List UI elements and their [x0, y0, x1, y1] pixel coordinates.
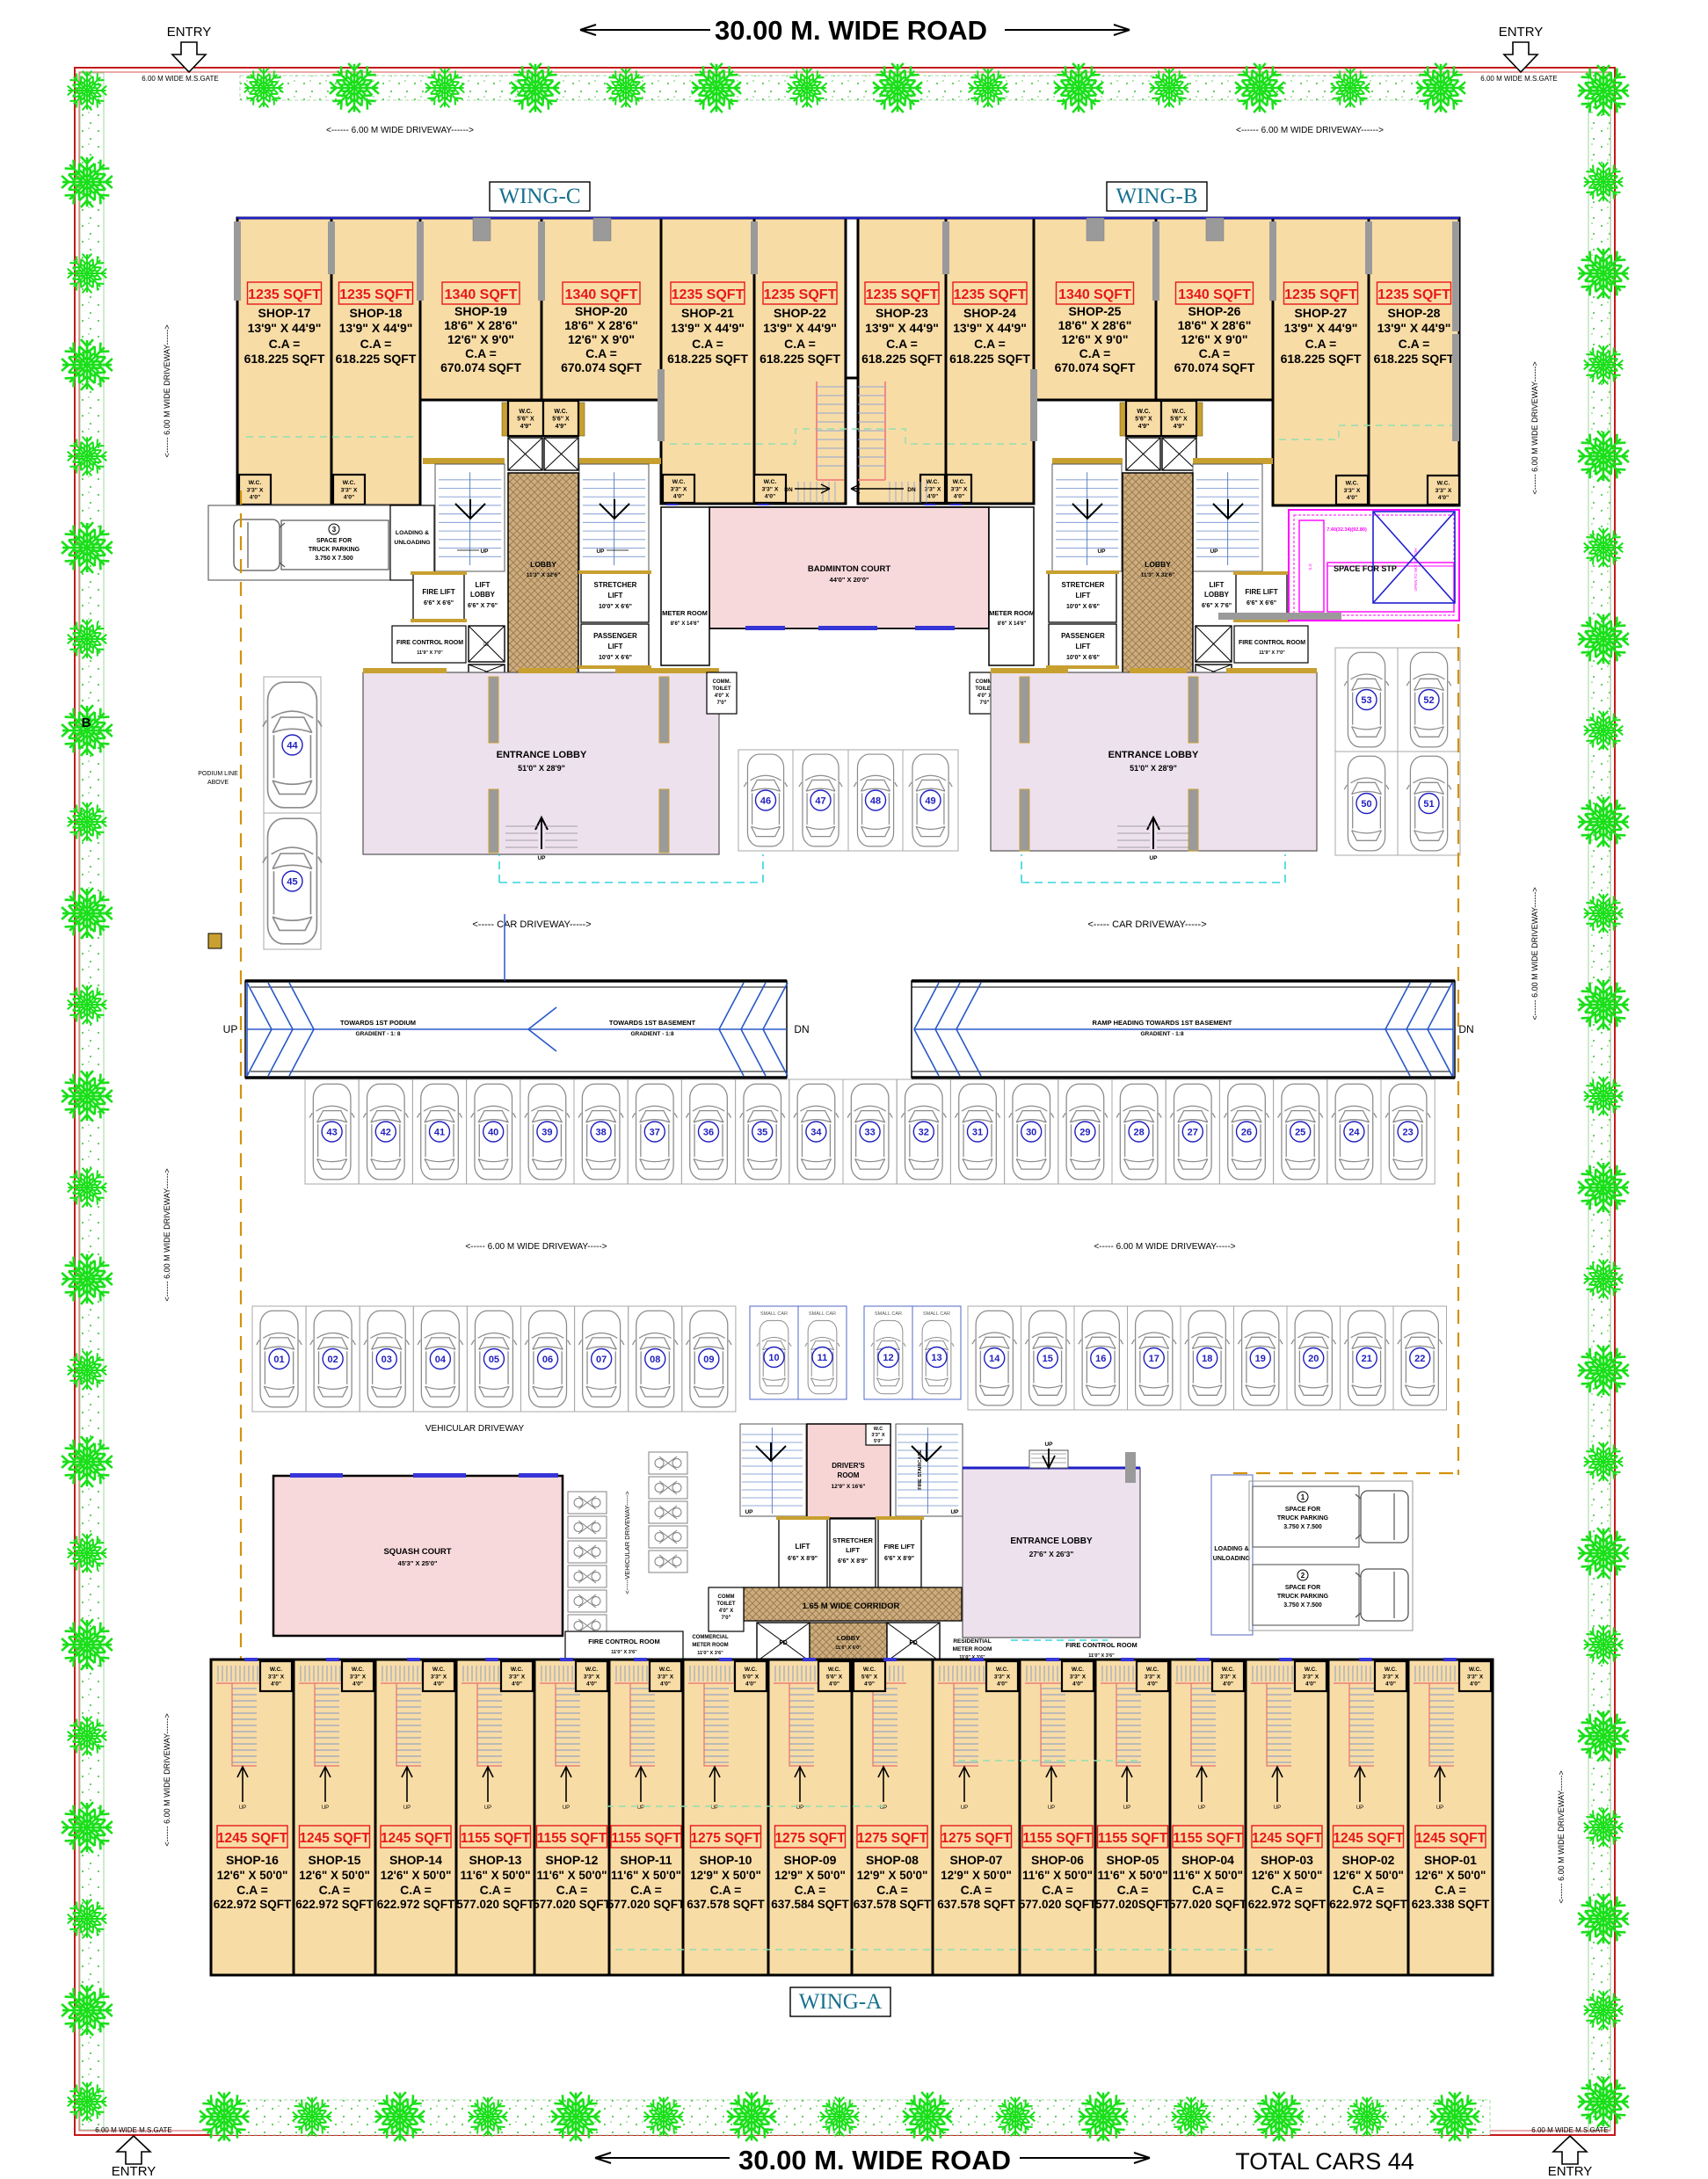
svg-text:45'3" X 25'0": 45'3" X 25'0" [398, 1559, 438, 1567]
svg-text:GRADIENT - 1:8: GRADIENT - 1:8 [1140, 1031, 1184, 1037]
svg-text:3'3" X: 3'3" X [1435, 488, 1452, 494]
svg-text:UP: UP [637, 1805, 644, 1811]
svg-text:622.972 SQFT: 622.972 SQFT [1248, 1898, 1326, 1911]
svg-text:DN: DN [794, 1023, 809, 1035]
svg-text:C.A =: C.A = [556, 1883, 588, 1897]
svg-text:C.A =: C.A = [795, 1883, 826, 1897]
svg-text:11: 11 [818, 1353, 828, 1363]
svg-text:UP: UP [1097, 548, 1106, 555]
svg-text:3.750 X 7.500: 3.750 X 7.500 [1283, 1524, 1322, 1530]
svg-text:SMALL CAR: SMALL CAR [809, 1311, 836, 1317]
svg-text:10: 10 [768, 1353, 779, 1363]
svg-text:4'0": 4'0" [1305, 1681, 1316, 1687]
svg-text:622.972 SQFT: 622.972 SQFT [377, 1898, 455, 1911]
svg-text:SHOP-08: SHOP-08 [866, 1853, 919, 1867]
svg-text:48: 48 [870, 796, 881, 807]
svg-text:670.074 SQFT: 670.074 SQFT [561, 360, 642, 374]
svg-text:UP: UP [239, 1805, 246, 1811]
svg-text:21: 21 [1362, 1354, 1372, 1364]
svg-text:3'3" X: 3'3" X [1383, 1674, 1399, 1680]
svg-text:3'3" X: 3'3" X [925, 486, 941, 492]
svg-text:GRADIENT - 1:8: GRADIENT - 1:8 [630, 1031, 674, 1037]
svg-text:PASSENGER: PASSENGER [1061, 632, 1105, 640]
svg-text:11'6" X 50'0": 11'6" X 50'0" [1097, 1869, 1167, 1882]
svg-text:COMM: COMM [718, 1594, 735, 1600]
svg-text:WING-A: WING-A [799, 1990, 882, 2014]
svg-text:UP: UP [1149, 855, 1158, 861]
svg-text:SHOP-05: SHOP-05 [1107, 1853, 1159, 1867]
svg-text:577.020 SQFT: 577.020 SQFT [456, 1898, 534, 1911]
svg-text:UP: UP [322, 1805, 329, 1811]
svg-text:12'6" X 9'0": 12'6" X 9'0" [447, 332, 514, 346]
svg-text:1245 SQFT: 1245 SQFT [1252, 1831, 1323, 1846]
svg-text:RESIDENTIAL: RESIDENTIAL [953, 1638, 991, 1645]
svg-text:5'0": 5'0" [874, 1439, 883, 1444]
svg-text:1235 SQFT: 1235 SQFT [1377, 287, 1450, 302]
svg-text:LOBBY: LOBBY [470, 591, 496, 599]
svg-text:1.65 M WIDE CORRIDOR: 1.65 M WIDE CORRIDOR [803, 1602, 900, 1611]
svg-text:SHOP-13: SHOP-13 [469, 1853, 522, 1867]
svg-text:53: 53 [1361, 695, 1371, 706]
svg-text:LIFT: LIFT [608, 592, 623, 599]
svg-text:6'6" X 7'6": 6'6" X 7'6" [468, 603, 498, 609]
svg-text:UP: UP [961, 1805, 968, 1811]
svg-text:W.C.: W.C. [1385, 1667, 1397, 1673]
svg-text:SHOP-18: SHOP-18 [350, 306, 403, 320]
svg-text:<----- 6.00 M WIDE DRIVEWAY---: <----- 6.00 M WIDE DRIVEWAY-----> [1094, 1242, 1235, 1252]
svg-text:SHOP-23: SHOP-23 [876, 306, 928, 320]
svg-text:LIFT: LIFT [476, 581, 491, 589]
svg-text:B: B [82, 715, 91, 730]
svg-text:30.00 M. WIDE ROAD: 30.00 M. WIDE ROAD [738, 2145, 1011, 2175]
svg-text:13: 13 [931, 1353, 941, 1363]
svg-text:618.225 SQFT: 618.225 SQFT [244, 352, 325, 366]
svg-text:1235 SQFT: 1235 SQFT [764, 287, 837, 302]
svg-text:C.A =: C.A = [886, 337, 918, 351]
svg-text:4'0" X: 4'0" X [715, 694, 730, 699]
svg-text:3'3" X: 3'3" X [1070, 1674, 1087, 1680]
svg-text:W.C: W.C [874, 1427, 883, 1432]
svg-text:UP: UP [1123, 1805, 1130, 1811]
svg-text:UP: UP [711, 1805, 718, 1811]
svg-text:5'6" X: 5'6" X [826, 1674, 843, 1680]
svg-text:44'0" X 20'0": 44'0" X 20'0" [830, 576, 869, 584]
svg-text:4'0": 4'0" [927, 494, 938, 500]
svg-text:SHOP-16: SHOP-16 [226, 1853, 279, 1867]
svg-text:W.C.: W.C. [352, 1667, 364, 1673]
svg-text:11'9" X 7'0": 11'9" X 7'0" [417, 650, 443, 656]
svg-text:52: 52 [1423, 695, 1434, 706]
svg-text:SPACE FOR: SPACE FOR [1285, 1585, 1320, 1591]
svg-text:618.225 SQFT: 618.225 SQFT [760, 352, 840, 366]
svg-text:LIFT: LIFT [1076, 643, 1091, 650]
svg-text:C.A =: C.A = [360, 337, 392, 351]
svg-text:SHOP-01: SHOP-01 [1424, 1853, 1477, 1867]
svg-text:6'6" X 8'9": 6'6" X 8'9" [788, 1556, 818, 1562]
svg-text:12'6" X 50'0": 12'6" X 50'0" [1252, 1869, 1323, 1882]
svg-text:1235 SQFT: 1235 SQFT [954, 287, 1027, 302]
svg-text:637.584 SQFT: 637.584 SQFT [771, 1898, 849, 1911]
svg-text:13'9" X 44'9": 13'9" X 44'9" [339, 321, 413, 335]
svg-text:24: 24 [1348, 1128, 1360, 1138]
svg-text:49: 49 [925, 796, 935, 807]
svg-text:W.C.: W.C. [1437, 481, 1450, 487]
svg-text:ENTRY: ENTRY [1499, 25, 1544, 40]
svg-text:ENTRANCE LOBBY: ENTRANCE LOBBY [1010, 1536, 1093, 1546]
svg-text:W.C.: W.C. [996, 1667, 1008, 1673]
svg-text:618.225 SQFT: 618.225 SQFT [949, 352, 1030, 366]
svg-text:ENTRANCE LOBBY: ENTRANCE LOBBY [497, 750, 587, 760]
svg-text:22: 22 [1414, 1354, 1425, 1364]
svg-text:1245 SQFT: 1245 SQFT [217, 1831, 288, 1846]
svg-text:637.578 SQFT: 637.578 SQFT [687, 1898, 765, 1911]
svg-text:UP: UP [1044, 1442, 1053, 1448]
svg-text:12'9" X 50'0": 12'9" X 50'0" [690, 1869, 761, 1882]
svg-text:12'9" X 50'0": 12'9" X 50'0" [857, 1869, 928, 1882]
svg-text:1155 SQFT: 1155 SQFT [537, 1831, 607, 1846]
svg-text:FIRE CONTROL ROOM: FIRE CONTROL ROOM [588, 1638, 660, 1645]
svg-text:40: 40 [488, 1128, 498, 1138]
svg-text:670.074 SQFT: 670.074 SQFT [440, 360, 521, 374]
svg-text:19: 19 [1255, 1354, 1266, 1364]
svg-text:18'6" X 28'6": 18'6" X 28'6" [1058, 318, 1132, 332]
svg-text:35: 35 [757, 1128, 767, 1138]
svg-text:C.A =: C.A = [269, 337, 301, 351]
svg-text:7'0": 7'0" [980, 701, 990, 706]
svg-text:W.C.: W.C. [554, 409, 567, 415]
svg-text:W.C.: W.C. [672, 479, 686, 485]
svg-text:6'6" X 6'6": 6'6" X 6'6" [424, 600, 454, 606]
svg-text:26: 26 [1241, 1128, 1252, 1138]
svg-text:SHOP-06: SHOP-06 [1031, 1853, 1084, 1867]
svg-text:<----- CAR DRIVEWAY----->: <----- CAR DRIVEWAY-----> [1087, 919, 1206, 930]
svg-text:3'3" X: 3'3" X [341, 487, 358, 493]
svg-text:SHOP-12: SHOP-12 [546, 1853, 599, 1867]
svg-text:6.00 M WIDE M.S.GATE: 6.00 M WIDE M.S.GATE [1480, 75, 1557, 83]
svg-text:UP: UP [1356, 1805, 1363, 1811]
svg-text:16: 16 [1095, 1354, 1106, 1364]
svg-text:LOBBY: LOBBY [530, 560, 556, 569]
svg-text:4'0": 4'0" [864, 1681, 875, 1687]
svg-text:13'9" X 44'9": 13'9" X 44'9" [865, 321, 939, 335]
svg-text:3'3" X: 3'3" X [1467, 1674, 1484, 1680]
svg-text:FIRE STAIRCASE: FIRE STAIRCASE [918, 1449, 923, 1490]
svg-text:SHOP-28: SHOP-28 [1388, 306, 1441, 320]
svg-text:1235 SQFT: 1235 SQFT [866, 287, 939, 302]
svg-text:SHOP-27: SHOP-27 [1295, 306, 1348, 320]
svg-text:1235 SQFT: 1235 SQFT [248, 287, 321, 302]
svg-text:<------ 6.00 M WIDE DRIVEWAY--: <------ 6.00 M WIDE DRIVEWAY------> [163, 1168, 171, 1301]
svg-text:LIFT: LIFT [796, 1543, 810, 1551]
svg-text:W.C.: W.C. [1137, 409, 1150, 415]
svg-text:UP: UP [1198, 1805, 1205, 1811]
svg-text:3'3" X: 3'3" X [1220, 1674, 1237, 1680]
svg-text:W.C.: W.C. [519, 409, 532, 415]
svg-text:4'0": 4'0" [745, 1681, 756, 1687]
svg-text:ENTRY: ENTRY [1548, 2164, 1593, 2179]
svg-text:W.C.: W.C. [1346, 481, 1359, 487]
svg-text:1245 SQFT: 1245 SQFT [299, 1831, 370, 1846]
svg-text:3'3" X: 3'3" X [509, 1674, 526, 1680]
svg-text:C.A =: C.A = [465, 346, 497, 360]
svg-text:1245 SQFT: 1245 SQFT [1415, 1831, 1486, 1846]
svg-text:SPACE FOR STP: SPACE FOR STP [1334, 564, 1397, 573]
svg-text:30.00 M. WIDE ROAD: 30.00 M. WIDE ROAD [715, 15, 987, 46]
svg-text:11'0" X 3'6": 11'0" X 3'6" [1088, 1653, 1115, 1659]
svg-text:C.A =: C.A = [961, 1883, 992, 1897]
svg-text:4'0": 4'0" [829, 1681, 839, 1687]
svg-text:UP: UP [537, 855, 546, 861]
svg-text:<-----VEHICULAR DRIVEWAY----->: <-----VEHICULAR DRIVEWAY-----> [623, 1491, 631, 1594]
svg-text:UP: UP [950, 1509, 959, 1515]
svg-text:11'6" X 50'0": 11'6" X 50'0" [1173, 1869, 1243, 1882]
svg-text:☑: ☑ [483, 641, 489, 648]
svg-text:8'6" X 14'6": 8'6" X 14'6" [998, 621, 1027, 627]
svg-text:W.C.: W.C. [745, 1667, 757, 1673]
svg-text:<------ 6.00 M WIDE DRIVEWAY--: <------ 6.00 M WIDE DRIVEWAY------> [326, 126, 474, 135]
svg-text:UP: UP [403, 1805, 411, 1811]
svg-text:5'6" X: 5'6" X [517, 416, 534, 422]
svg-text:UP: UP [1210, 548, 1218, 555]
svg-text:4'0": 4'0" [512, 1681, 522, 1687]
svg-text:W.C.: W.C. [343, 480, 356, 486]
svg-text:W.C.: W.C. [511, 1667, 523, 1673]
svg-text:<----- CAR DRIVEWAY----->: <----- CAR DRIVEWAY-----> [472, 919, 591, 930]
svg-text:6'6" X 7'6": 6'6" X 7'6" [1202, 603, 1232, 609]
svg-text:DN: DN [784, 487, 793, 493]
svg-text:7.40(32.34)(92.80): 7.40(32.34)(92.80) [1326, 527, 1367, 533]
svg-text:03: 03 [382, 1355, 392, 1365]
svg-text:4'0": 4'0" [250, 495, 260, 501]
svg-text:622.972 SQFT: 622.972 SQFT [295, 1898, 374, 1911]
svg-text:<------ 6.00 M WIDE DRIVEWAY--: <------ 6.00 M WIDE DRIVEWAY------> [1530, 887, 1539, 1020]
svg-text:4'9": 4'9" [556, 424, 567, 430]
svg-text:14: 14 [989, 1354, 1000, 1364]
svg-text:STRETCHER: STRETCHER [832, 1536, 873, 1544]
svg-text:12'9" X 16'6": 12'9" X 16'6" [832, 1484, 866, 1490]
svg-text:4'9": 4'9" [520, 424, 532, 430]
svg-text:FIRE CONTROL ROOM: FIRE CONTROL ROOM [396, 640, 463, 646]
svg-text:TRUCK PARKING: TRUCK PARKING [1277, 1594, 1329, 1600]
svg-text:3'3" X: 3'3" X [247, 487, 264, 493]
svg-text:C.A =: C.A = [1192, 1883, 1224, 1897]
svg-text:13'9" X 44'9": 13'9" X 44'9" [248, 321, 322, 335]
svg-text:08: 08 [650, 1355, 660, 1365]
svg-text:12'6" X 9'0": 12'6" X 9'0" [1062, 332, 1129, 346]
svg-text:METER ROOM: METER ROOM [989, 609, 1035, 617]
svg-text:45: 45 [287, 877, 297, 888]
svg-text:01: 01 [273, 1355, 284, 1365]
svg-text:15: 15 [1043, 1354, 1053, 1364]
svg-text:UP: UP [1274, 1805, 1281, 1811]
svg-text:4'0": 4'0" [433, 1681, 444, 1687]
svg-text:11'0" X 3'6": 11'0" X 3'6" [697, 1651, 723, 1656]
svg-text:W.C.: W.C. [1146, 1667, 1159, 1673]
svg-text:METER ROOM: METER ROOM [953, 1646, 992, 1652]
svg-text:C.A =: C.A = [400, 1883, 432, 1897]
svg-text:C.A =: C.A = [1271, 1883, 1303, 1897]
svg-text:23: 23 [1402, 1128, 1413, 1138]
svg-text:6'6" X 8'9": 6'6" X 8'9" [884, 1556, 914, 1562]
svg-text:12'6" X 50'0": 12'6" X 50'0" [381, 1869, 452, 1882]
svg-text:6.00 M WIDE M.S.GATE: 6.00 M WIDE M.S.GATE [95, 2126, 171, 2134]
svg-text:10'0" X 6'6": 10'0" X 6'6" [1066, 604, 1100, 610]
svg-text:1245 SQFT: 1245 SQFT [1333, 1831, 1404, 1846]
svg-text:30: 30 [1026, 1128, 1036, 1138]
svg-text:7'0": 7'0" [722, 1616, 731, 1621]
svg-text:51: 51 [1423, 799, 1434, 810]
svg-text:SHOP-24: SHOP-24 [963, 306, 1016, 320]
svg-text:1340 SQFT: 1340 SQFT [565, 287, 638, 302]
svg-text:W.C.: W.C. [764, 479, 777, 485]
svg-text:1245 SQFT: 1245 SQFT [381, 1831, 452, 1846]
svg-text:5'6" X: 5'6" X [1135, 416, 1152, 422]
svg-text:SMALL CAR: SMALL CAR [875, 1311, 902, 1317]
svg-text:<------ 6.00 M WIDE DRIVEWAY--: <------ 6.00 M WIDE DRIVEWAY------> [163, 1713, 171, 1846]
svg-text:SHOP-11: SHOP-11 [620, 1853, 672, 1867]
svg-text:UP: UP [1048, 1805, 1055, 1811]
svg-text:6'6" X 6'6": 6'6" X 6'6" [1246, 600, 1276, 606]
svg-text:C.A =: C.A = [1435, 1883, 1466, 1897]
svg-text:18'6" X 28'6": 18'6" X 28'6" [564, 318, 638, 332]
svg-text:S.D: S.D [1308, 563, 1312, 570]
svg-text:637.578 SQFT: 637.578 SQFT [854, 1898, 932, 1911]
svg-text:4'0": 4'0" [1147, 1681, 1158, 1687]
svg-text:METER ROOM: METER ROOM [662, 609, 708, 617]
svg-text:1275 SQFT: 1275 SQFT [774, 1831, 846, 1846]
svg-text:FD: FD [909, 1640, 917, 1646]
svg-text:4'0": 4'0" [1223, 1681, 1233, 1687]
svg-text:STRETCHER: STRETCHER [594, 581, 637, 589]
svg-text:29: 29 [1079, 1128, 1090, 1138]
svg-text:WING-B: WING-B [1116, 185, 1197, 208]
svg-text:4'0": 4'0" [271, 1681, 281, 1687]
svg-text:C.A =: C.A = [1353, 1883, 1385, 1897]
svg-text:LOBBY: LOBBY [1145, 560, 1171, 569]
svg-text:3'3" X: 3'3" X [1145, 1674, 1161, 1680]
svg-text:SHOP-04: SHOP-04 [1181, 1853, 1234, 1867]
svg-text:3.750 X 7.500: 3.750 X 7.500 [1283, 1602, 1322, 1609]
svg-text:12'6" X 9'0": 12'6" X 9'0" [1181, 332, 1248, 346]
svg-text:618.225 SQFT: 618.225 SQFT [336, 352, 417, 366]
svg-text:RAMP HEADING TOWARDS 1ST BASEM: RAMP HEADING TOWARDS 1ST BASEMENT [1093, 1019, 1232, 1027]
svg-text:SMALL CAR: SMALL CAR [760, 1311, 788, 1317]
svg-text:10'0" X 6'6": 10'0" X 6'6" [599, 655, 632, 661]
svg-text:7'0": 7'0" [717, 701, 727, 706]
svg-text:C.A =: C.A = [692, 337, 723, 351]
svg-text:1275 SQFT: 1275 SQFT [941, 1831, 1012, 1846]
svg-text:<------ 6.00 M WIDE DRIVEWAY--: <------ 6.00 M WIDE DRIVEWAY------> [1557, 1770, 1566, 1903]
svg-text:C.A =: C.A = [1399, 337, 1430, 351]
svg-text:8'6" X 14'6": 8'6" X 14'6" [671, 621, 700, 627]
svg-text:FIRE LIFT: FIRE LIFT [884, 1543, 915, 1551]
svg-text:3'3" X: 3'3" X [951, 486, 968, 492]
svg-text:C.A =: C.A = [710, 1883, 742, 1897]
svg-text:5'6" X: 5'6" X [861, 1674, 878, 1680]
svg-text:13'9" X 44'9": 13'9" X 44'9" [1377, 321, 1451, 335]
svg-text:11'3" X 32'6": 11'3" X 32'6" [527, 572, 561, 578]
svg-text:SHOP-07: SHOP-07 [950, 1853, 1003, 1867]
svg-text:3'3" X: 3'3" X [762, 486, 779, 492]
svg-text:20: 20 [1308, 1354, 1319, 1364]
svg-text:11'6" X 50'0": 11'6" X 50'0" [1022, 1869, 1093, 1882]
svg-text:11'6" X 6'0": 11'6" X 6'0" [835, 1645, 861, 1651]
svg-text:W.C.: W.C. [1072, 1667, 1084, 1673]
svg-text:670.074 SQFT: 670.074 SQFT [1055, 360, 1136, 374]
svg-text:42: 42 [381, 1128, 391, 1138]
svg-text:TOILET: TOILET [716, 1602, 736, 1607]
svg-text:C.A =: C.A = [974, 337, 1006, 351]
svg-text:12'6" X 50'0": 12'6" X 50'0" [1333, 1869, 1404, 1882]
svg-text:UP: UP [563, 1805, 570, 1811]
svg-text:COMM.: COMM. [713, 679, 731, 685]
svg-text:ENTRANCE LOBBY: ENTRANCE LOBBY [1108, 750, 1199, 760]
svg-text:13'9" X 44'9": 13'9" X 44'9" [671, 321, 745, 335]
svg-text:3'3" X: 3'3" X [994, 1674, 1011, 1680]
svg-text:TOWARDS 1ST PODIUM: TOWARDS 1ST PODIUM [340, 1019, 416, 1027]
svg-text:PODIUM LINE: PODIUM LINE [198, 771, 238, 777]
svg-text:11'6" X 50'0": 11'6" X 50'0" [460, 1869, 530, 1882]
svg-text:W.C.: W.C. [659, 1667, 672, 1673]
svg-text:618.225 SQFT: 618.225 SQFT [1281, 352, 1362, 366]
svg-text:ROOM: ROOM [838, 1471, 860, 1479]
svg-text:W.C.: W.C. [270, 1667, 282, 1673]
svg-text:34: 34 [810, 1128, 822, 1138]
svg-text:577.020SQFT: 577.020SQFT [1095, 1898, 1171, 1911]
svg-text:<------ 6.00 M WIDE DRIVEWAY--: <------ 6.00 M WIDE DRIVEWAY------> [163, 324, 171, 457]
svg-text:05: 05 [489, 1355, 499, 1365]
svg-text:GRADIENT - 1: 8: GRADIENT - 1: 8 [356, 1031, 401, 1037]
svg-text:3'3" X: 3'3" X [268, 1674, 285, 1680]
svg-text:ENTRY: ENTRY [167, 25, 212, 40]
svg-text:577.020 SQFT: 577.020 SQFT [1019, 1898, 1097, 1911]
svg-text:618.225 SQFT: 618.225 SQFT [667, 352, 748, 366]
svg-text:4'0": 4'0" [660, 1681, 671, 1687]
svg-text:4'0": 4'0" [1347, 495, 1357, 501]
svg-text:577.020 SQFT: 577.020 SQFT [607, 1898, 686, 1911]
svg-text:SMALL CAR: SMALL CAR [923, 1311, 950, 1317]
svg-text:TRUCK PARKING: TRUCK PARKING [1277, 1515, 1329, 1522]
svg-text:ENTRY: ENTRY [112, 2164, 156, 2179]
svg-text:SHOP-19: SHOP-19 [454, 304, 507, 318]
svg-text:DRIVER'S: DRIVER'S [832, 1462, 865, 1470]
svg-text:46: 46 [760, 796, 771, 807]
svg-text:31: 31 [972, 1128, 983, 1138]
svg-text:1155 SQFT: 1155 SQFT [611, 1831, 681, 1846]
svg-text:C.A =: C.A = [784, 337, 816, 351]
svg-text:DN: DN [1458, 1023, 1473, 1035]
svg-text:1: 1 [1301, 1493, 1305, 1501]
svg-text:FD: FD [779, 1640, 787, 1646]
svg-text:C.A =: C.A = [1042, 1883, 1073, 1897]
svg-text:12'6" X 50'0": 12'6" X 50'0" [1415, 1869, 1486, 1882]
svg-text:6.00 M WIDE M.S.GATE: 6.00 M WIDE M.S.GATE [1531, 2126, 1608, 2134]
svg-text:STRETCHER: STRETCHER [1062, 581, 1105, 589]
svg-text:SHOP-26: SHOP-26 [1188, 304, 1241, 318]
svg-text:51'0" X 28'9": 51'0" X 28'9" [518, 764, 565, 773]
svg-text:UP: UP [480, 548, 489, 555]
svg-text:11'0" X 3'6": 11'0" X 3'6" [611, 1650, 637, 1655]
svg-text:C.A =: C.A = [585, 346, 617, 360]
svg-text:50: 50 [1361, 799, 1371, 810]
svg-text:W.C.: W.C. [249, 480, 262, 486]
svg-text:623.338 SQFT: 623.338 SQFT [1412, 1898, 1490, 1911]
svg-text:4'0": 4'0" [1385, 1681, 1396, 1687]
svg-text:1155 SQFT: 1155 SQFT [1173, 1831, 1243, 1846]
svg-text:DN: DN [907, 487, 916, 493]
svg-text:1235 SQFT: 1235 SQFT [672, 287, 745, 302]
svg-text:18: 18 [1202, 1354, 1212, 1364]
